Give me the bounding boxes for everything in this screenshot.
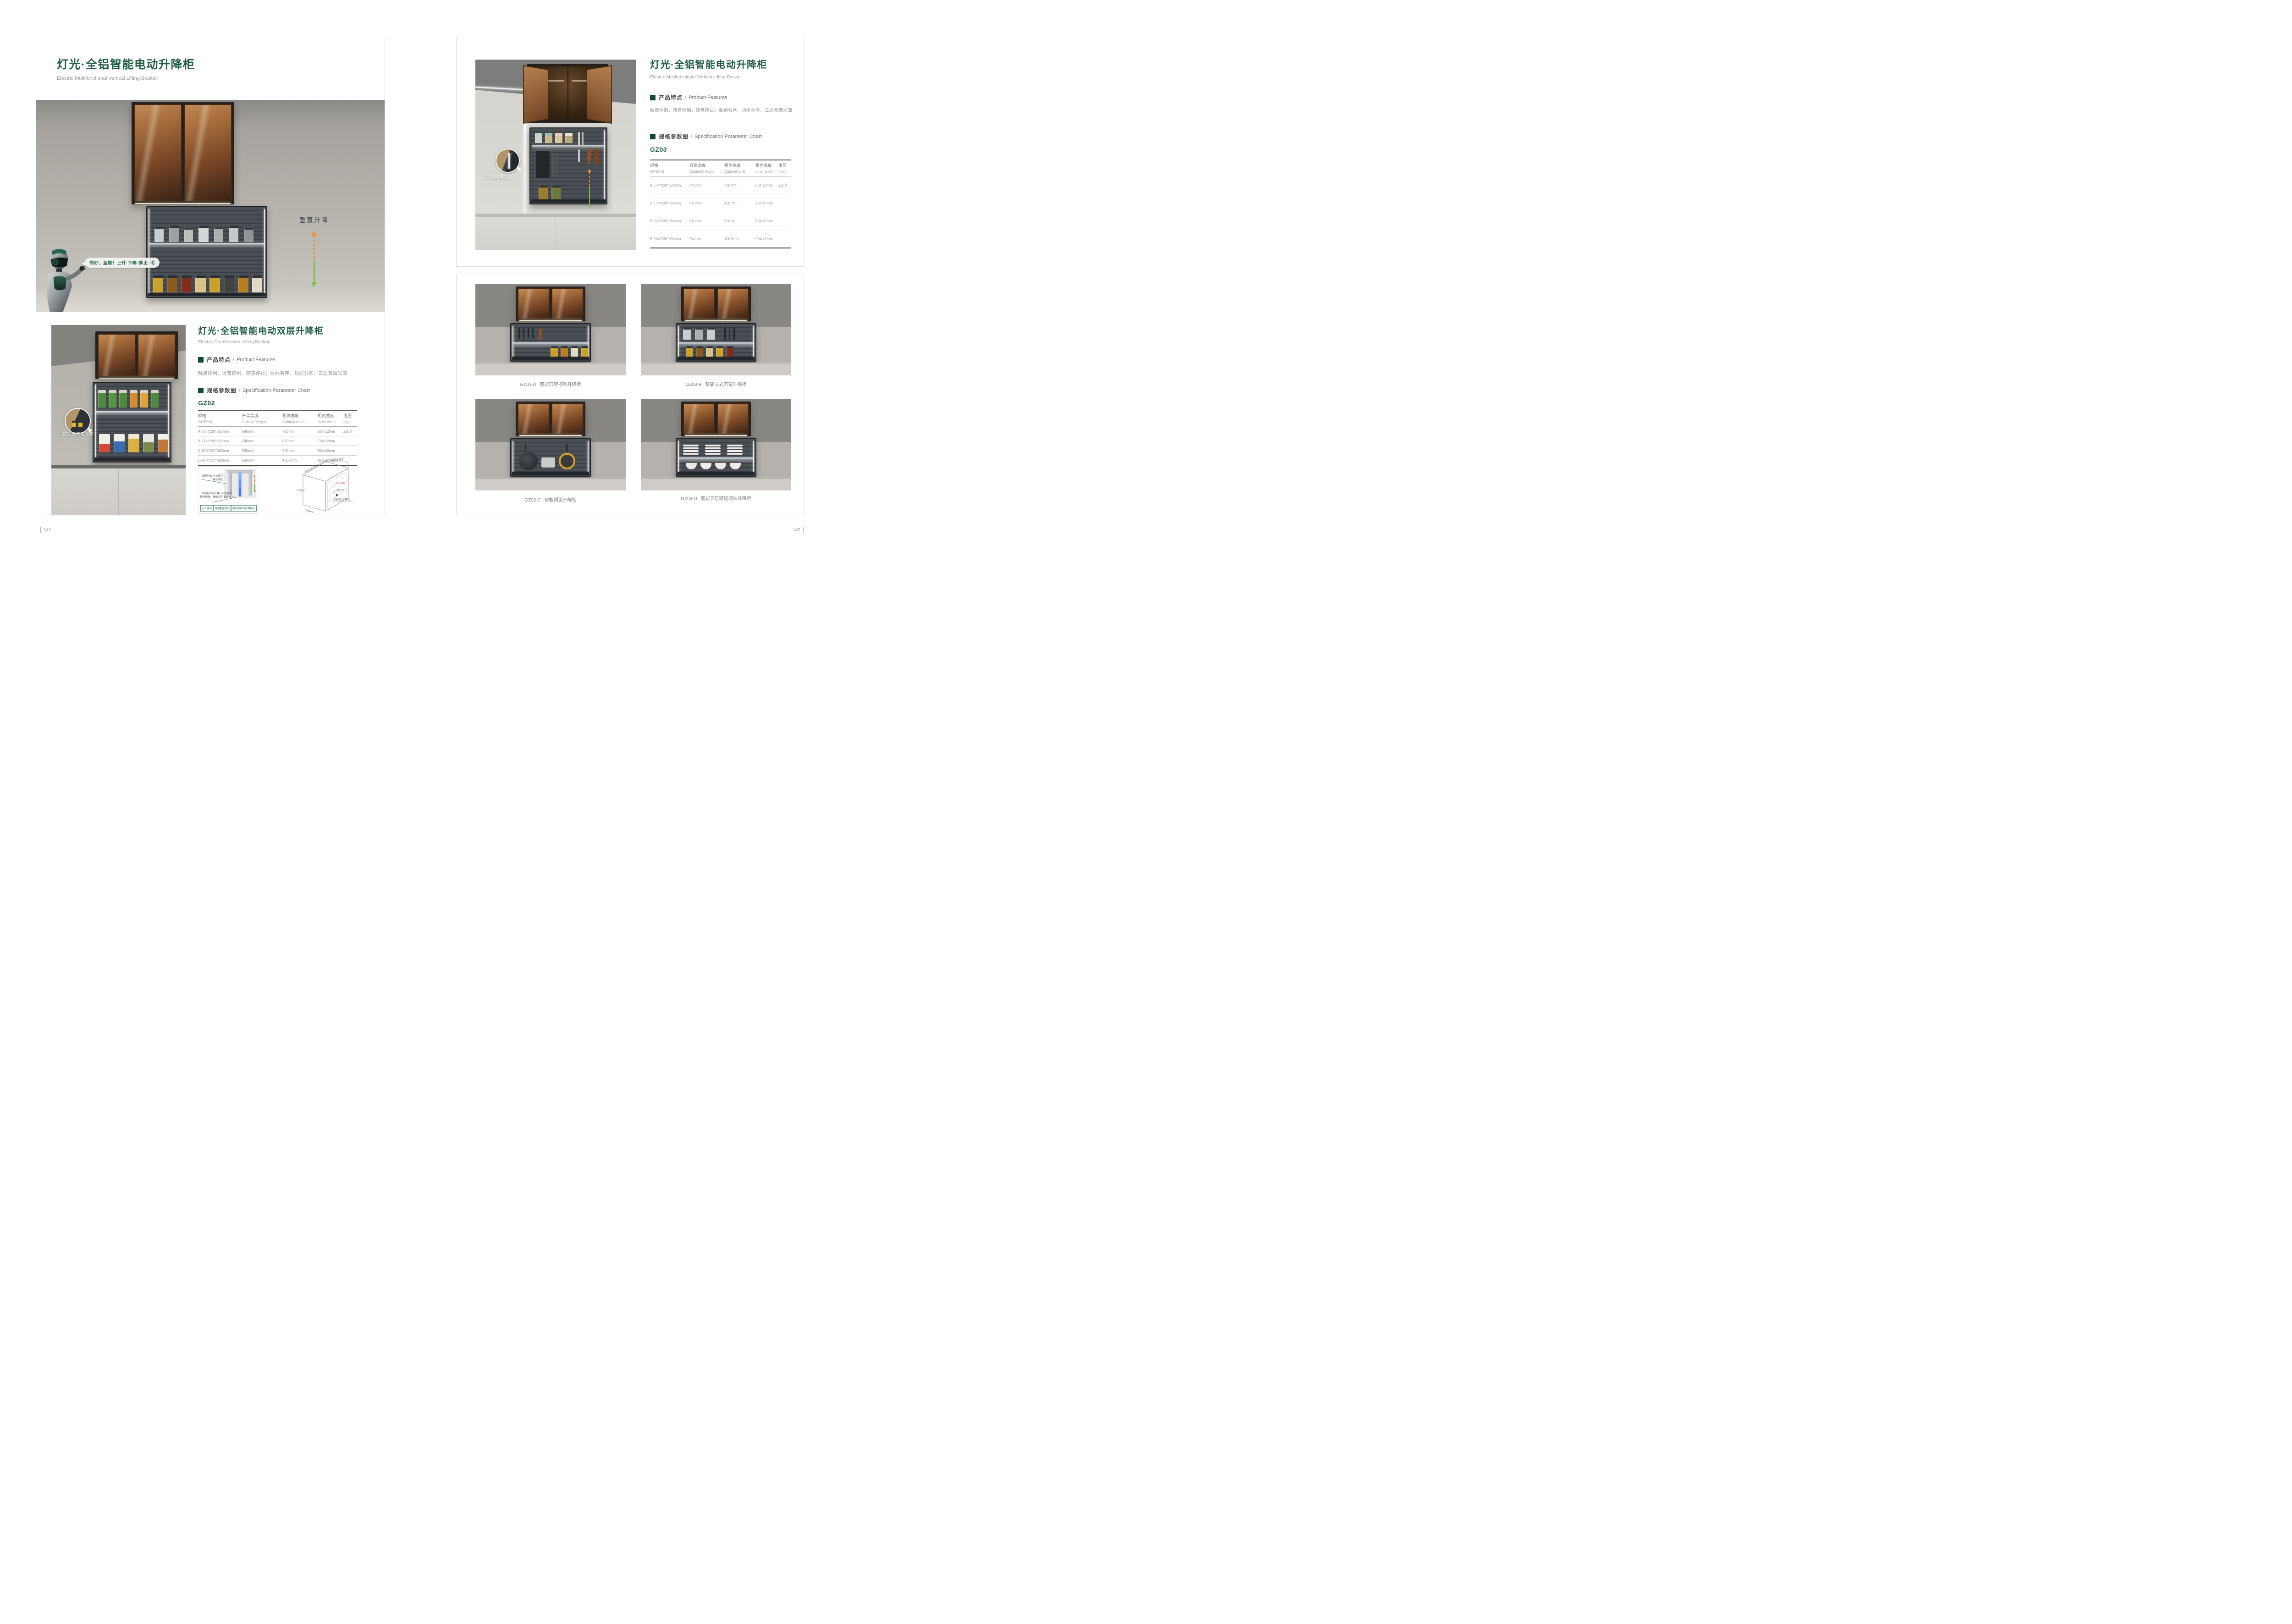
features-text: 触摸控制、语音控制、随意停止；收纳有序、功能分区、三边氛围光源 xyxy=(650,107,794,113)
product-label-gz03-b: GZ03-B智能立式刀架升降柜 xyxy=(641,380,791,387)
dimension-diagram: 700/800/900/1000mm ∅35出线孔 700mm 330mm 22… xyxy=(297,457,356,516)
sound-wave-icon xyxy=(150,260,155,265)
double-layer-photo: 二层玻璃氛围光源 xyxy=(51,325,186,515)
cabinet-door-right xyxy=(184,104,232,202)
dim-height: 700mm xyxy=(297,490,306,492)
catalog-spread: 灯光·全铝智能电动升降柜 Electric Multifunctional Ve… xyxy=(0,0,830,541)
lift-indicator-small: 垂直升降 xyxy=(579,160,600,208)
vertical-lift-photo: 三边氛围光源 垂直升降 xyxy=(475,60,636,250)
square-bullet-icon xyxy=(198,388,204,393)
table-row: A:674*230*683mm540mm700mm664 ±2mm220V xyxy=(650,176,791,194)
table-row: B:974*230*683mm540mm1000mm964 ±2mm xyxy=(650,230,791,248)
wall-cabinet xyxy=(95,331,178,379)
dim-outlet-hole: ∅35出线孔 xyxy=(331,458,344,462)
product-label-gz03-d: GZ03-D智能三层碗碟调味升降柜 xyxy=(641,495,791,501)
product-photo-gz03-b xyxy=(641,284,791,375)
open-door-left xyxy=(523,65,548,124)
product-label-gz03-c: GZ03-C智能锅盖升降柜 xyxy=(475,496,626,503)
photo-callout-label: 三边氛围光源 xyxy=(485,174,513,180)
right-page-products: GZ03-A智能刀架挂钩升降柜 xyxy=(456,274,804,516)
lift-label: 垂直升降 xyxy=(299,215,329,225)
badge: 中间平衡同步螺旋杆 xyxy=(231,505,257,512)
left-page-header: 灯光·全铝智能电动升降柜 Electric Multifunctional Ve… xyxy=(57,55,195,81)
voice-command-text: 你好，蓝鲸！上升·下降·停止 xyxy=(89,259,148,266)
spec-heading: 规格参数图 / Specification Parameter Chart xyxy=(650,132,794,140)
detail-callout-circle xyxy=(65,408,91,434)
lift-label: 垂直升降 xyxy=(580,160,599,165)
page-subtitle: Electric Multifunctional Vertical Liftin… xyxy=(57,76,195,81)
section-subtitle: Electric Double-layer Lifting Basket xyxy=(198,340,359,345)
spec-table-gz03: 规格(W*D*H) 升高高度Cabinet Height 柜体宽度Cabinet… xyxy=(650,160,791,248)
page-number-right: 142 xyxy=(793,527,804,533)
page-number-left: 141 xyxy=(40,527,51,533)
counter-edge xyxy=(51,465,186,468)
product-photo-gz03-d xyxy=(641,399,791,490)
hero-photo: 你好，蓝鲸！上升·下降·停止 垂直升降 xyxy=(36,100,385,312)
model-code: GZ03 xyxy=(650,146,794,153)
mechanism-panel: 伺服电机·左右重型轴芯滑轨 中间旋转同步螺杆平衡受力 静密顺滑，静谧无声·载重量… xyxy=(198,466,258,514)
counter-edge xyxy=(475,214,636,217)
features-heading: 产品特点 / Product Features xyxy=(198,356,359,363)
lift-indicator: 垂直升降 xyxy=(293,215,335,287)
features-text: 触摸控制、语音控制、随意停止；收纳有序、功能分区、三边氛围光源 xyxy=(198,369,359,376)
voice-command-bubble: 你好，蓝鲸！上升·下降·停止 xyxy=(85,258,160,268)
arrow-down-icon xyxy=(311,282,317,287)
product-photo-gz03-c xyxy=(475,399,626,490)
under-cabinet-light xyxy=(135,203,231,204)
square-bullet-icon xyxy=(650,95,656,100)
right-page-info: 灯光·全铝智能电动升降柜 Electric Multifunctional Ve… xyxy=(650,57,794,248)
model-code: GZ02 xyxy=(198,399,359,407)
dim-depth: 330mm xyxy=(304,509,314,514)
cabinet-door-left xyxy=(134,104,182,202)
table-row: A:674*230*683mm540mm700mm664 ±2mm220V xyxy=(198,427,357,436)
glass-shelf xyxy=(149,243,264,245)
arrow-down-icon xyxy=(588,205,591,208)
section-title: 灯光·全铝智能电动双层升降柜 xyxy=(198,324,359,336)
table-row: B:874*230*683mm540mm900mm864 ±2mm xyxy=(650,212,791,230)
screw-rod xyxy=(239,473,241,496)
product-label-gz03-a: GZ03-A智能刀架挂钩升降柜 xyxy=(475,380,626,387)
led-strip-right xyxy=(264,209,265,294)
features-heading: 产品特点 / Product Features xyxy=(650,94,794,101)
detail-callout-circle xyxy=(496,149,520,173)
table-row: C:874*230*683mm540mm900mm864 ±2mm xyxy=(198,446,357,456)
table-row: B:774*230*683mm540mm800mm764 ±2mm xyxy=(650,194,791,212)
lifting-rack xyxy=(146,206,267,298)
open-door-right xyxy=(587,65,612,124)
dim-switch-hole: ∅35深15开关 xyxy=(333,498,350,501)
robot-figure xyxy=(39,245,87,312)
photo-callout-label: 二层玻璃氛围光源 xyxy=(59,431,94,437)
page-title: 灯光·全铝智能电动升降柜 xyxy=(650,57,794,71)
square-bullet-icon xyxy=(650,134,656,139)
badge: 行业独创 xyxy=(200,505,213,512)
right-page-top: 三边氛围光源 垂直升降 灯光·全铝智能电动升降柜 Electric Multif… xyxy=(456,36,804,267)
double-layer-rack xyxy=(93,382,171,462)
square-bullet-icon xyxy=(198,357,204,363)
page-title: 灯光·全铝智能电动升降柜 xyxy=(57,55,195,72)
double-layer-info: 灯光·全铝智能电动双层升降柜 Electric Double-layer Lif… xyxy=(198,324,359,466)
badge: 两边重型滑轨 xyxy=(213,505,231,512)
product-photo-gz03-a xyxy=(475,284,626,375)
mechanism-badges: 行业独创 两边重型滑轨 中间平衡同步螺旋杆 xyxy=(200,505,256,512)
spec-heading: 规格参数图 / Specification Parameter Chart xyxy=(198,386,359,394)
page-subtitle: Electric Multifunctional Vertical Liftin… xyxy=(650,75,794,80)
led-strip-left xyxy=(149,209,149,294)
arrow-up-icon xyxy=(588,169,591,172)
open-cabinet xyxy=(527,64,608,123)
rack-bottom-rail xyxy=(148,293,265,296)
left-page: 灯光·全铝智能电动升降柜 Electric Multifunctional Ve… xyxy=(36,36,385,516)
dim-width-options: 700/800/900/1000mm xyxy=(303,459,328,474)
dim-offset: 46mm xyxy=(336,489,344,492)
table-row: B:774*230*683mm540mm800mm764 ±2mm xyxy=(198,436,357,446)
wall-cabinet xyxy=(132,102,234,204)
arrow-up-icon xyxy=(311,231,317,236)
dim-clearance: 220mm xyxy=(336,482,345,485)
led-pillar xyxy=(524,124,526,214)
